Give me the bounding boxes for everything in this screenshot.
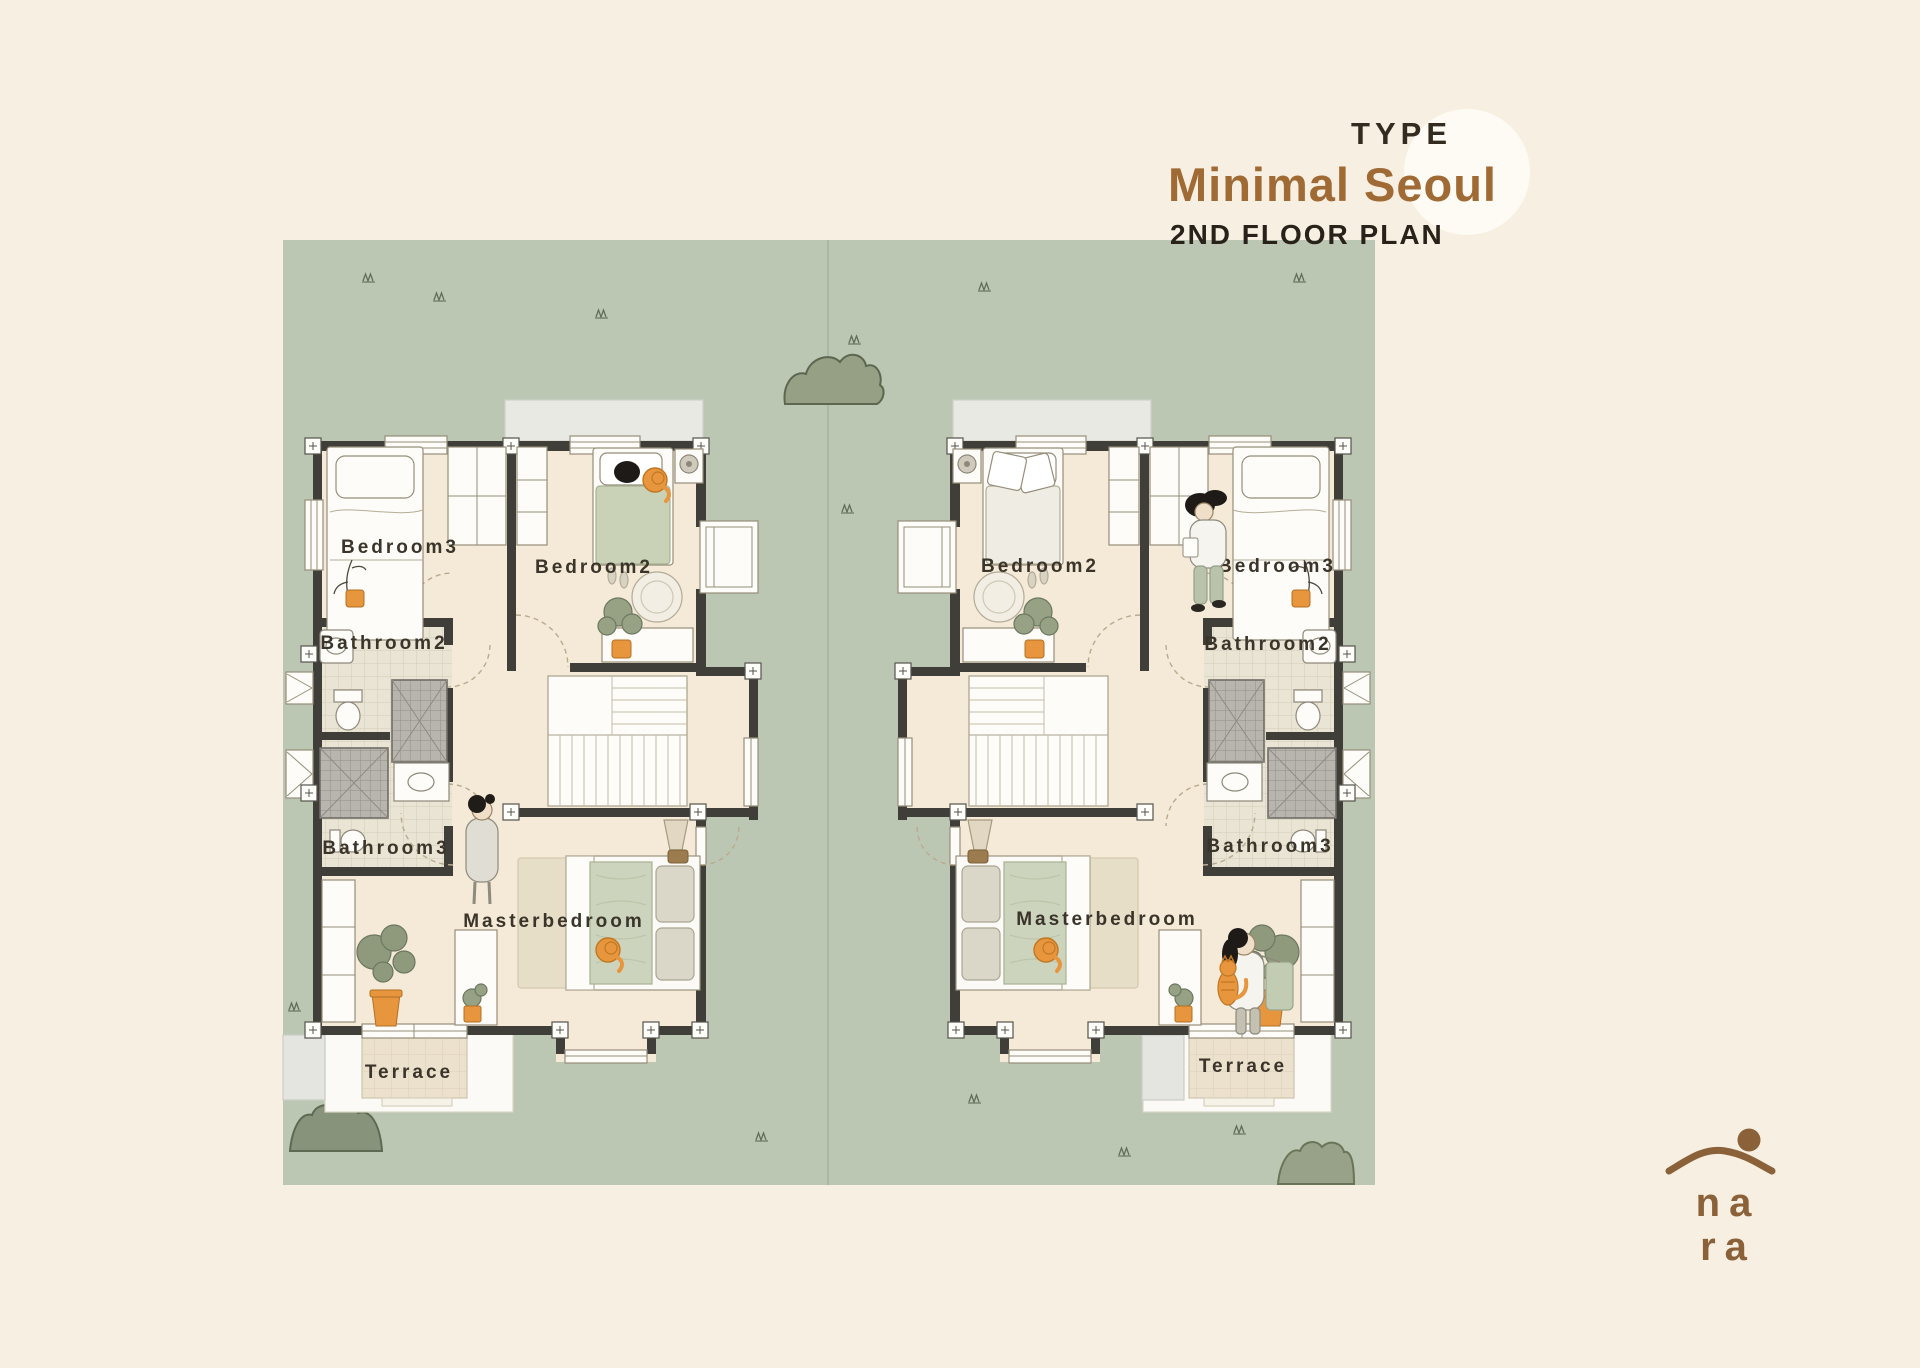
room-label-left-masterbedroom: Masterbedroom <box>463 911 645 932</box>
room-label-left-bathroom2: Bathroom2 <box>320 633 447 654</box>
plan-title: Minimal Seoul <box>1168 158 1497 211</box>
room-label-right-bedroom3: Bedroom3 <box>1218 556 1336 577</box>
room-label-left-terrace: Terrace <box>365 1062 453 1083</box>
floorplan-poster: Bedroom3Bedroom2Bathroom2Bathroom3Master… <box>0 0 1920 1368</box>
room-label-left-bedroom3: Bedroom3 <box>341 537 459 558</box>
room-label-right-bathroom3: Bathroom3 <box>1206 836 1333 857</box>
type-label: TYPE <box>1351 116 1452 151</box>
room-label-left-bathroom3: Bathroom3 <box>322 838 449 859</box>
room-label-left-bedroom2: Bedroom2 <box>535 557 653 578</box>
sun-dot-icon <box>1738 1129 1761 1152</box>
room-label-right-masterbedroom: Masterbedroom <box>1016 909 1198 930</box>
left-unit-floorplan <box>283 400 761 1112</box>
brand-name-line2: ra <box>1700 1225 1756 1269</box>
room-label-right-terrace: Terrace <box>1199 1056 1287 1077</box>
room-label-right-bedroom2: Bedroom2 <box>981 556 1099 577</box>
brand-name-line1: na <box>1696 1181 1761 1225</box>
room-label-right-bathroom2: Bathroom2 <box>1204 634 1331 655</box>
floor-plan-canvas: Bedroom3Bedroom2Bathroom2Bathroom3Master… <box>0 0 1920 1368</box>
right-unit-floorplan <box>895 400 1370 1112</box>
floor-plan-subtitle: 2ND FLOOR PLAN <box>1170 219 1444 250</box>
